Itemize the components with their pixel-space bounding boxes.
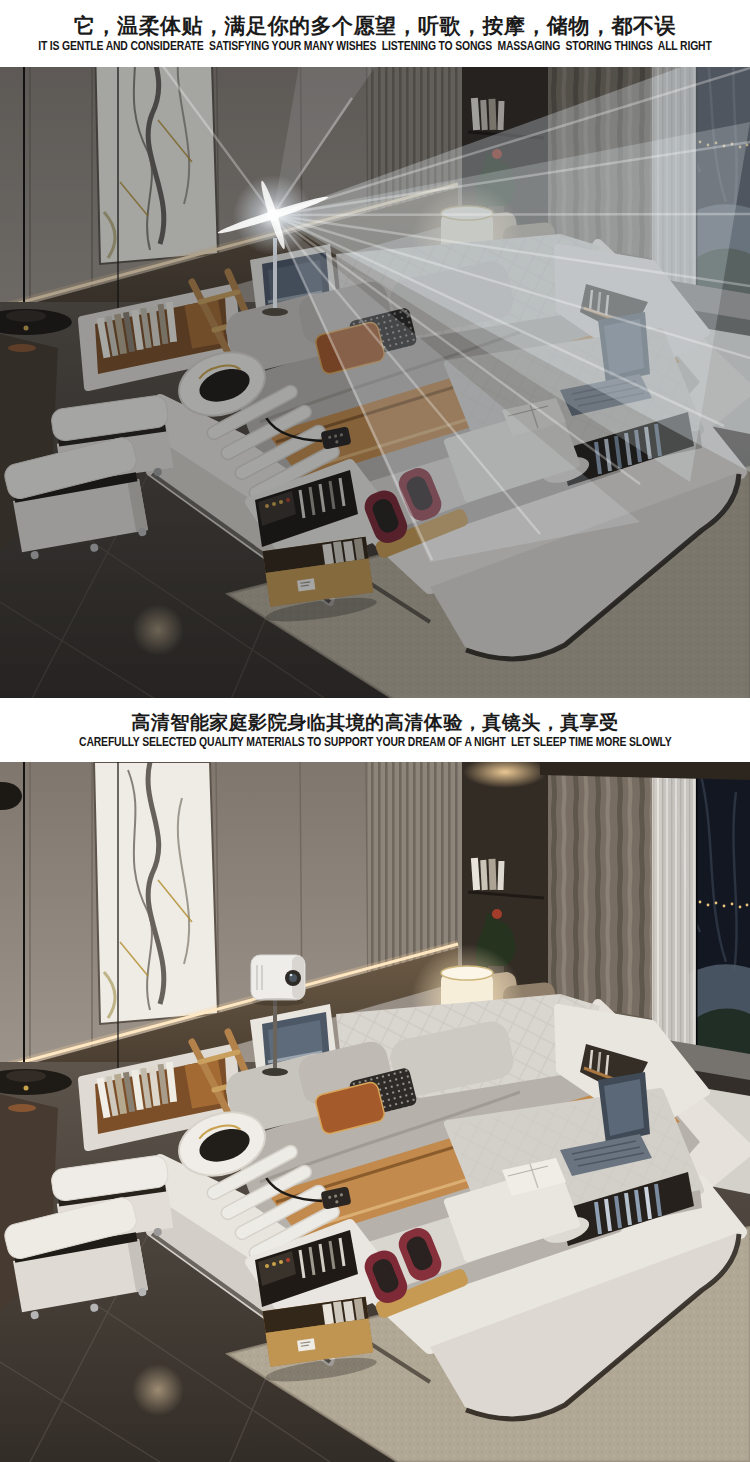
- top-subtitle-en: IT IS GENTLE AND CONSIDERATE SATISFYING …: [38, 38, 711, 53]
- top-caption: 它，温柔体贴，满足你的多个愿望，听歌，按摩，储物，都不误 IT IS GENTL…: [0, 0, 750, 67]
- top-title-zh: 它，温柔体贴，满足你的多个愿望，听歌，按摩，储物，都不误: [74, 14, 676, 38]
- product-detail-page: 它，温柔体贴，满足你的多个愿望，听歌，按摩，储物，都不误 IT IS GENTL…: [0, 0, 750, 1462]
- photo-projection-beam: [0, 67, 750, 698]
- photo-projector-device: [0, 762, 750, 1462]
- mid-caption: 高清智能家庭影院身临其境的高清体验，真镜头，真享受 CAREFULLY SELE…: [0, 698, 750, 762]
- mid-title-zh: 高清智能家庭影院身临其境的高清体验，真镜头，真享受: [131, 712, 619, 734]
- mid-subtitle-en: CAREFULLY SELECTED QUALITY MATERIALS TO …: [79, 734, 672, 749]
